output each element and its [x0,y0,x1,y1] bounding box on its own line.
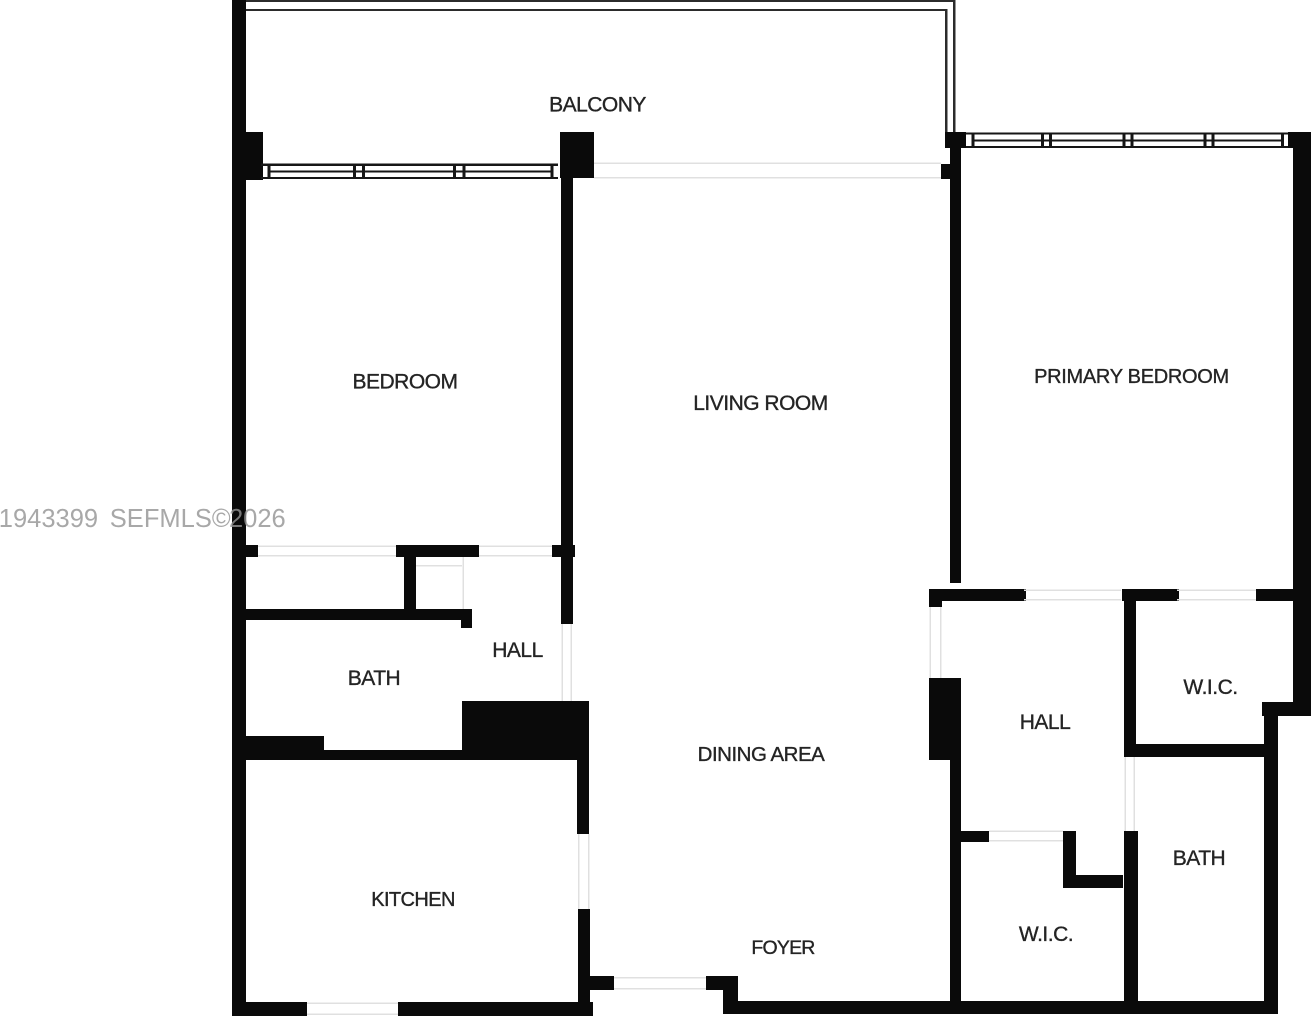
svg-text:W.I.C.: W.I.C. [1019,923,1073,946]
svg-text:11943399SEFMLS©2026: 11943399SEFMLS©2026 [0,505,286,533]
svg-text:BALCONY: BALCONY [549,94,646,117]
svg-text:W.I.C.: W.I.C. [1183,676,1237,699]
svg-text:HALL: HALL [1020,711,1071,734]
svg-text:BATH: BATH [348,667,400,690]
svg-text:KITCHEN: KITCHEN [371,889,455,911]
svg-text:BATH: BATH [1173,847,1225,870]
svg-text:BEDROOM: BEDROOM [352,370,457,393]
svg-text:HALL: HALL [492,639,543,662]
svg-text:LIVING ROOM: LIVING ROOM [693,392,828,415]
svg-text:FOYER: FOYER [751,937,815,959]
svg-text:DINING AREA: DINING AREA [698,743,825,766]
svg-text:PRIMARY BEDROOM: PRIMARY BEDROOM [1034,366,1229,388]
